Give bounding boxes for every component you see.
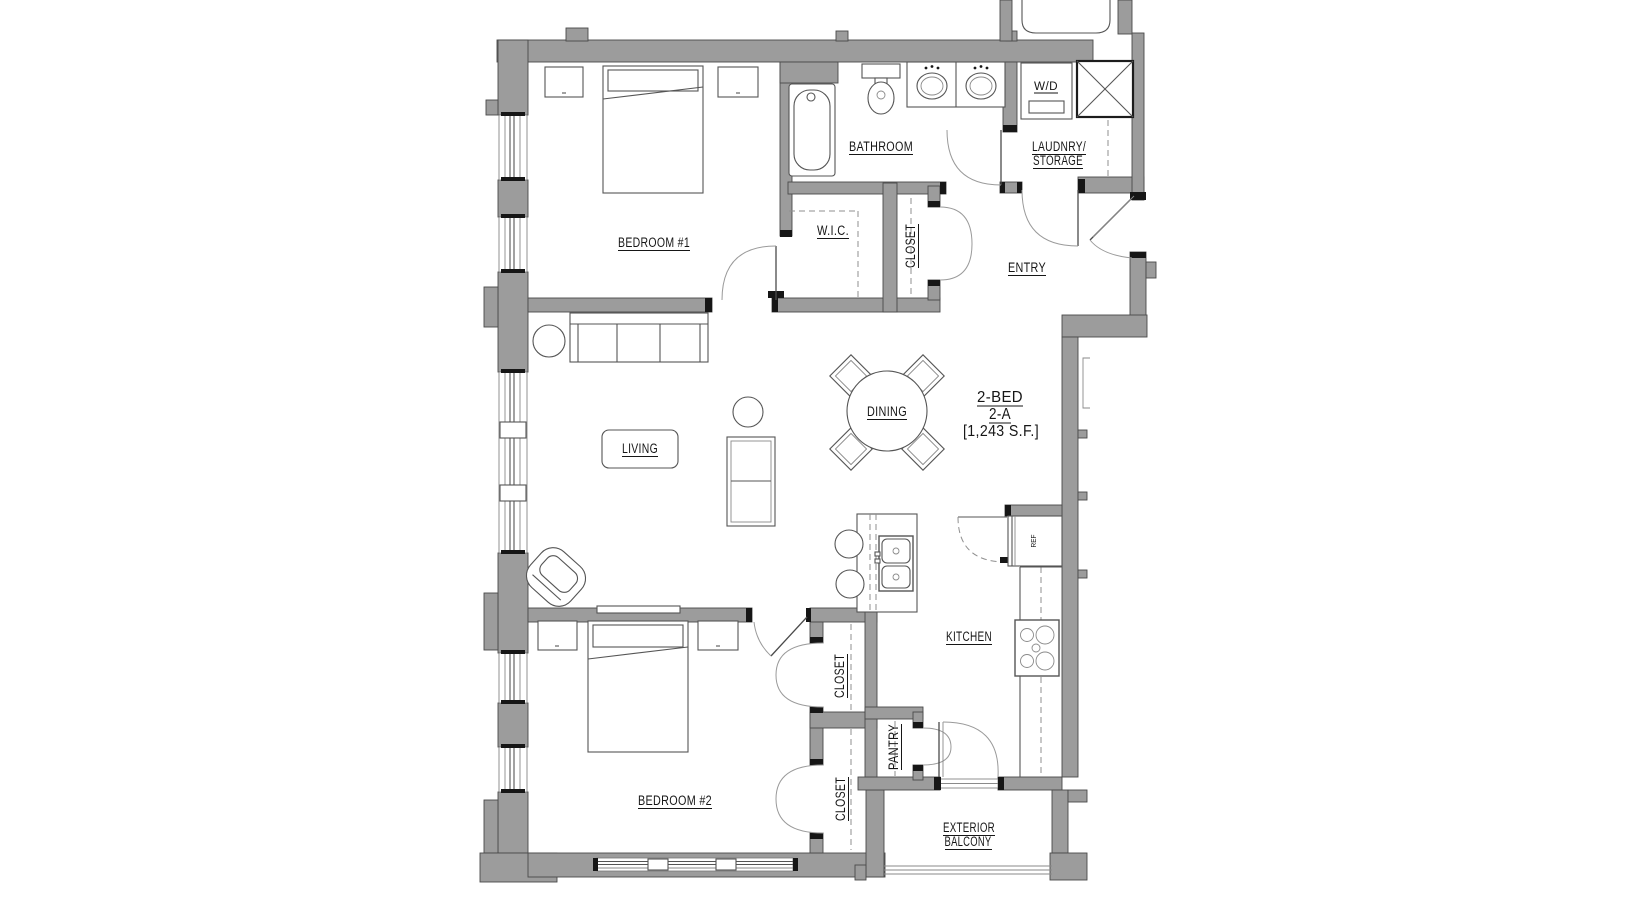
svg-text:PANTRY: PANTRY xyxy=(886,724,901,770)
pantry-bifold xyxy=(923,728,951,765)
unit-area: [1,243 S.F.] xyxy=(963,423,1039,440)
label-laundry-line2: STORAGE xyxy=(1033,153,1083,168)
window-bedroom1-b xyxy=(499,217,527,272)
living-furniture xyxy=(520,313,775,613)
label-dining: DINING xyxy=(867,404,907,419)
floor-plan-svg: BATHROOM LAUDNRY/ STORAGE W/D BEDROOM #1… xyxy=(0,0,1640,924)
label-bedroom1: BEDROOM #1 xyxy=(618,235,690,250)
label-closet-entry: CLOSET xyxy=(903,224,919,268)
label-living: LIVING xyxy=(622,441,658,456)
bathroom-door xyxy=(947,130,1001,185)
closet-lower-bifold xyxy=(776,765,823,833)
svg-text:CLOSET: CLOSET xyxy=(903,224,918,268)
window-bedroom2-a xyxy=(499,653,527,703)
label-kitchen: KITCHEN xyxy=(946,629,992,644)
label-pantry: PANTRY xyxy=(886,724,902,770)
bedroom2-furniture xyxy=(538,606,738,752)
floor-plan-canvas: BATHROOM LAUDNRY/ STORAGE W/D BEDROOM #1… xyxy=(0,0,1640,924)
window-bottom-band xyxy=(593,858,798,871)
refrigerator-door xyxy=(958,517,1009,563)
svg-text:CLOSET: CLOSET xyxy=(832,654,847,698)
window-bedroom1-a xyxy=(499,115,527,180)
label-entry: ENTRY xyxy=(1008,260,1046,275)
range xyxy=(1015,620,1059,676)
balcony-door xyxy=(939,722,998,777)
label-washer-dryer: W/D xyxy=(1034,81,1058,93)
label-wic: W.I.C. xyxy=(817,223,849,238)
armchair xyxy=(520,541,592,613)
label-bedroom2: BEDROOM #2 xyxy=(638,793,712,808)
label-laundry-line1: LAUDNRY/ xyxy=(1032,139,1086,154)
unit-name: 2-BED xyxy=(977,389,1023,406)
closet-upper-bifold xyxy=(776,643,823,707)
shaft xyxy=(1077,61,1133,117)
window-living-band xyxy=(499,372,527,553)
label-bathroom: BATHROOM xyxy=(849,139,913,154)
svg-text:REF: REF xyxy=(1031,535,1038,548)
unit-entry-door xyxy=(1090,196,1134,258)
laundry-door xyxy=(1022,190,1078,246)
unit-variant: 2-A xyxy=(989,406,1011,423)
svg-text:CLOSET: CLOSET xyxy=(833,777,848,821)
entry-closet-bifold xyxy=(940,207,972,280)
bedroom1-door xyxy=(722,246,776,300)
window-bedroom2-b xyxy=(499,747,527,792)
bedroom1-furniture xyxy=(545,66,758,193)
label-balcony-line1: EXTERIOR xyxy=(943,820,995,835)
bedroom2-door xyxy=(754,617,807,656)
label-closet-upper: CLOSET xyxy=(832,654,848,698)
label-closet-lower: CLOSET xyxy=(833,777,849,821)
label-balcony-line2: BALCONY xyxy=(945,834,992,849)
label-refrigerator: REF xyxy=(1031,535,1038,548)
